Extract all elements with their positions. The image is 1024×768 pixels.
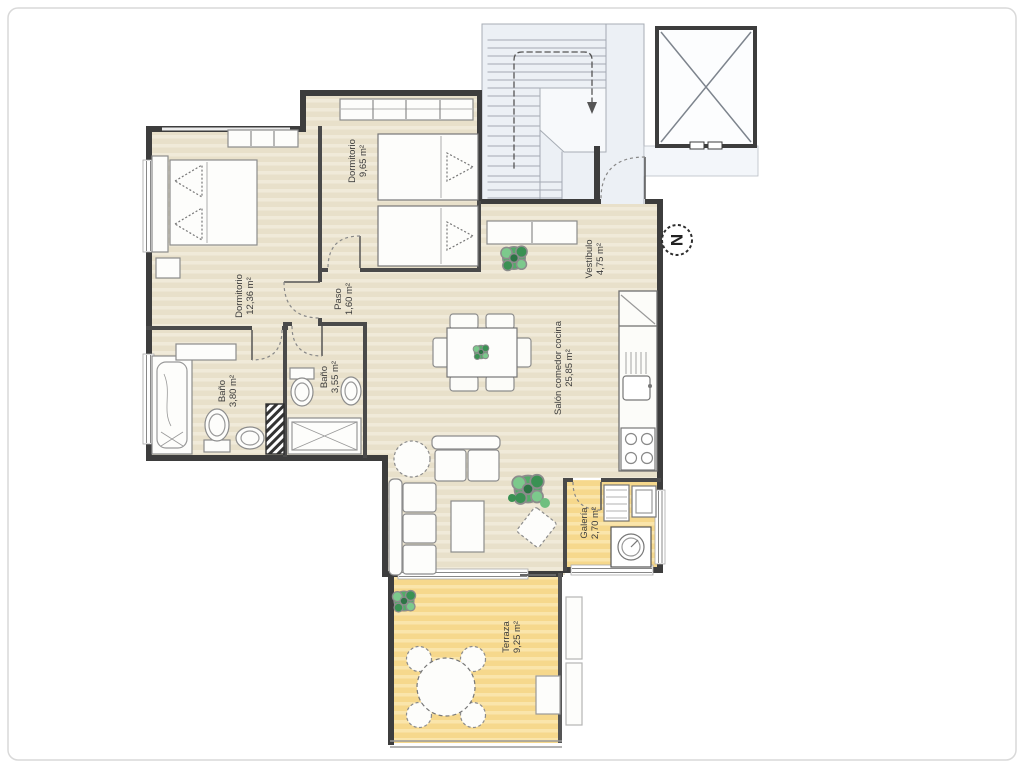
svg-text:Paso: Paso [333, 288, 344, 310]
room-label-dormitorio-2: Dormitorio 9,65 m² [347, 139, 369, 183]
washing-machine [611, 527, 651, 567]
svg-text:9,65 m²: 9,65 m² [358, 145, 369, 177]
plant-icon [501, 246, 527, 270]
wardrobe [228, 130, 298, 147]
floor-plan-page: N Dormitorio 12,36 m² Dormitorio 9,65 m²… [0, 0, 1024, 768]
ac-unit [536, 676, 560, 714]
svg-text:1,60 m²: 1,60 m² [344, 283, 355, 315]
single-bed [378, 134, 478, 200]
toilet [290, 368, 314, 406]
side-table [394, 441, 430, 477]
kitchen-hob [621, 428, 655, 470]
plant-icon [473, 345, 489, 360]
bathtub [152, 356, 192, 454]
hall-closet [487, 221, 577, 244]
svg-text:25,85 m²: 25,85 m² [564, 349, 575, 387]
kitchen-sink [623, 376, 650, 400]
toilet [204, 409, 230, 452]
svg-text:2,70 m²: 2,70 m² [590, 507, 601, 539]
kitchen-counter [619, 291, 657, 471]
stairwell [482, 24, 644, 205]
sofa-two-seat [432, 436, 500, 481]
room-label-dormitorio-1: Dormitorio 12,36 m² [234, 274, 256, 318]
svg-text:Baño: Baño [319, 366, 330, 388]
svg-text:Salón comedor cocina: Salón comedor cocina [553, 320, 564, 415]
svg-text:4,75 m²: 4,75 m² [595, 243, 606, 275]
wardrobe [340, 99, 473, 120]
svg-text:3,80 m²: 3,80 m² [228, 375, 239, 407]
elevator-shaft [657, 28, 755, 149]
svg-text:Terraza: Terraza [501, 620, 512, 652]
compass-label: N [667, 234, 686, 246]
svg-text:Baño: Baño [217, 380, 228, 402]
svg-text:Dormitorio: Dormitorio [234, 274, 245, 318]
nightstand [156, 258, 180, 278]
bathroom-vanity [176, 344, 236, 360]
shower-tray [288, 418, 361, 454]
bidet [236, 427, 264, 449]
svg-text:9,25 m²: 9,25 m² [512, 621, 523, 653]
floor-plan-svg: N Dormitorio 12,36 m² Dormitorio 9,65 m²… [0, 0, 1024, 768]
galeria-louver [604, 485, 629, 521]
installation-shaft [266, 404, 284, 454]
svg-text:Dormitorio: Dormitorio [347, 139, 358, 183]
room-label-vestibulo: Vestíbulo 4,75 m² [584, 239, 606, 278]
washbasin [341, 377, 361, 405]
single-bed [378, 206, 478, 266]
compass-icon: N [662, 225, 692, 255]
svg-text:Vestíbulo: Vestíbulo [584, 239, 595, 278]
elevator-corridor [644, 146, 758, 176]
svg-text:Galería: Galería [579, 507, 590, 539]
room-label-terraza: Terraza 9,25 m² [501, 620, 523, 653]
svg-text:12,36 m²: 12,36 m² [245, 277, 256, 315]
svg-text:3,55 m²: 3,55 m² [330, 361, 341, 393]
room-label-galeria: Galería 2,70 m² [579, 507, 601, 539]
terrace-table [417, 658, 475, 716]
plant-icon [392, 591, 415, 612]
double-bed [152, 156, 257, 252]
sofa-three-seat [389, 479, 436, 575]
galeria-sink [632, 486, 656, 517]
coffee-table [451, 501, 484, 552]
